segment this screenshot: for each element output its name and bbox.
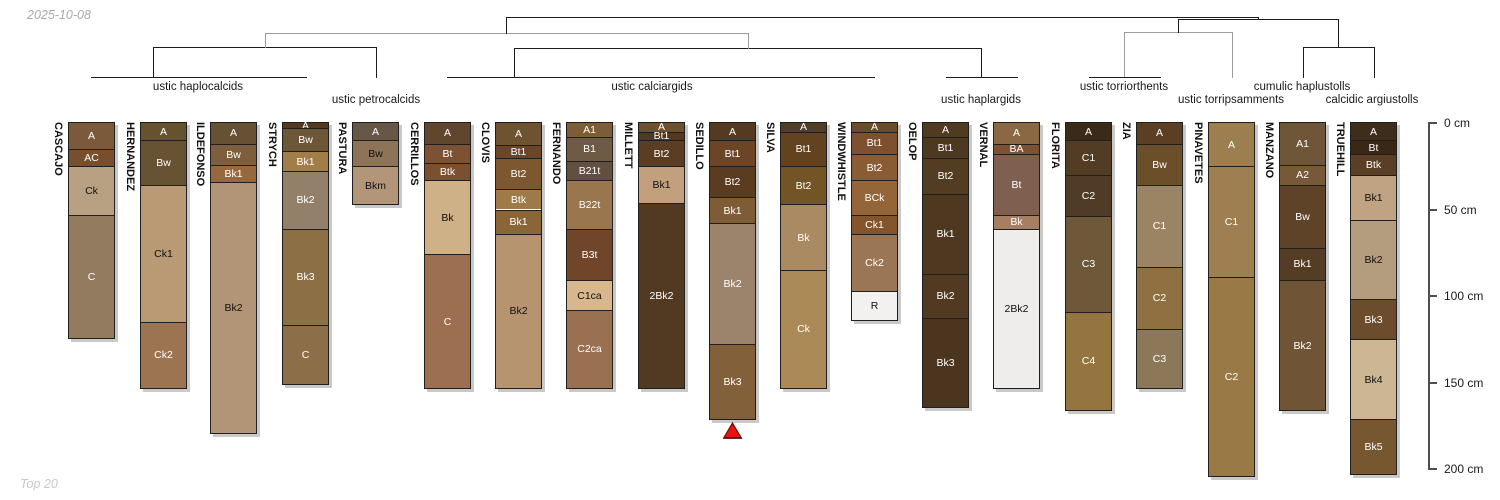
horizon-label: Bk: [1010, 217, 1022, 227]
depth-axis-tick: [1428, 382, 1437, 384]
horizon-fernando-b3t: B3t: [567, 229, 612, 281]
horizon-label: C1: [1153, 221, 1166, 231]
horizon-label: Bt1: [938, 143, 954, 153]
horizon-cerrillos-c: C: [425, 254, 470, 387]
horizon-silva-bt1: Bt1: [781, 132, 826, 167]
horizon-silva-a: A: [781, 123, 826, 132]
horizon-label: Ck: [85, 186, 98, 196]
horizon-label: Bk4: [1364, 375, 1382, 385]
horizon-windwhistle-r: R: [852, 291, 897, 320]
horizon-label: Bk1: [723, 206, 741, 216]
horizon-label: B1: [583, 144, 596, 154]
marker-triangle: [725, 424, 741, 437]
horizon-cascajo-ac: AC: [69, 149, 114, 166]
horizon-clovis-btk: Btk: [496, 189, 541, 210]
horizon-label: A: [1370, 127, 1377, 137]
horizon-label: Bt: [443, 149, 453, 159]
horizon-truehill-bk2: Bk2: [1351, 220, 1396, 300]
horizon-label: C1: [1225, 217, 1238, 227]
horizon-label: Bk2: [723, 279, 741, 289]
horizon-label: Bt1: [867, 138, 883, 148]
dendrogram-branch-v: [1232, 32, 1233, 78]
horizon-truehill-bk5: Bk5: [1351, 419, 1396, 474]
horizon-windwhistle-bt1: Bt1: [852, 132, 897, 154]
horizon-manzano-bk2: Bk2: [1280, 280, 1325, 410]
dendrogram-branch-h: [1089, 77, 1161, 78]
horizon-label: A: [1013, 128, 1020, 138]
horizon-zia-bw: Bw: [1137, 144, 1182, 186]
horizon-truehill-bt: Bt: [1351, 140, 1396, 154]
horizon-label: A: [729, 127, 736, 137]
horizon-label: B22t: [579, 200, 601, 210]
horizon-millett-bt1: Bt1: [639, 132, 684, 141]
horizon-vernal-bt: Bt: [994, 154, 1039, 215]
profile-name-windwhistle: WINDWHISTLE: [835, 122, 847, 201]
horizon-ildefonso-bk1: Bk1: [211, 165, 256, 182]
horizon-label: Btk: [511, 195, 526, 205]
horizon-label: Bkm: [365, 181, 386, 191]
horizon-pinavetes-c1: C1: [1209, 166, 1254, 277]
profile-name-clovis: CLOVIS: [479, 122, 491, 163]
horizon-label: A: [160, 127, 167, 137]
dendrogram-branch-v: [153, 47, 154, 78]
horizon-zia-c3: C3: [1137, 329, 1182, 388]
horizon-cascajo-c: C: [69, 215, 114, 338]
dendrogram-branch-v: [1258, 17, 1259, 20]
profile-name-truehill: TRUEHILL: [1334, 122, 1346, 176]
horizon-oelop-a: A: [923, 123, 968, 137]
horizon-florita-a: A: [1066, 123, 1111, 140]
horizon-oelop-bt1: Bt1: [923, 137, 968, 158]
horizon-truehill-bk4: Bk4: [1351, 339, 1396, 419]
horizon-label: B21t: [579, 166, 601, 176]
horizon-truehill-bk1: Bk1: [1351, 175, 1396, 220]
horizon-sedillo-bt1: Bt1: [710, 140, 755, 166]
horizon-label: Bk3: [1364, 315, 1382, 325]
profile-pastura: ABwBkm: [352, 122, 399, 205]
horizon-windwhistle-ck2: Ck2: [852, 234, 897, 291]
dendrogram-branch-v: [506, 17, 507, 34]
footer-top20-label: Top 20: [20, 477, 58, 491]
dendrogram-branch-v: [376, 47, 377, 78]
horizon-fernando-b1: B1: [567, 137, 612, 161]
horizon-florita-c3: C3: [1066, 216, 1111, 311]
profile-windwhistle: ABt1Bt2BCkCk1Ck2R: [851, 122, 898, 321]
horizon-label: A: [942, 125, 949, 135]
profile-name-oelop: OELOP: [906, 122, 918, 161]
horizon-hernandez-bw: Bw: [141, 140, 186, 185]
depth-axis-tick: [1428, 209, 1437, 211]
profile-fernando: A1B1B21tB22tB3tC1caC2ca: [566, 122, 613, 389]
horizon-label: Bk5: [1364, 442, 1382, 452]
soil-profile-dendrogram-plot: 2025-10-08 Top 20 ustic haplocalcidsusti…: [0, 0, 1500, 500]
horizon-label: C4: [1082, 356, 1095, 366]
cluster-label: ustic petrocalcids: [332, 94, 420, 106]
horizon-label: Bk2: [1364, 255, 1382, 265]
horizon-fernando-c2ca: C2ca: [567, 310, 612, 388]
horizon-oelop-bk2: Bk2: [923, 274, 968, 319]
horizon-label: A1: [583, 125, 596, 135]
horizon-cerrillos-bk: Bk: [425, 180, 470, 254]
horizon-label: A: [1156, 128, 1163, 138]
horizon-pastura-bkm: Bkm: [353, 166, 398, 204]
profile-name-ildefonso: ILDEFONSO: [194, 122, 206, 186]
horizon-strych-bk3: Bk3: [283, 229, 328, 326]
horizon-manzano-a1: A1: [1280, 123, 1325, 165]
dendrogram-branch-h: [91, 77, 307, 78]
horizon-ildefonso-bw: Bw: [211, 144, 256, 165]
cluster-label: ustic haplargids: [941, 94, 1021, 106]
horizon-oelop-bk3: Bk3: [923, 318, 968, 406]
profile-name-hernandez: HERNANDEZ: [124, 122, 136, 191]
horizon-label: R: [871, 301, 879, 311]
profile-name-silva: SILVA: [764, 122, 776, 153]
depth-axis-label-50: 50 cm: [1444, 203, 1477, 217]
horizon-label: Bk2: [936, 291, 954, 301]
horizon-vernal-ba: BA: [994, 144, 1039, 154]
profile-zia: ABwC1C2C3: [1136, 122, 1183, 389]
horizon-label: Bt2: [938, 171, 954, 181]
horizon-cerrillos-bt: Bt: [425, 144, 470, 163]
horizon-florita-c1: C1: [1066, 140, 1111, 175]
horizon-vernal-a: A: [994, 123, 1039, 144]
horizon-vernal-bk: Bk: [994, 215, 1039, 229]
horizon-label: Bt: [1369, 143, 1379, 153]
horizon-label: Bk: [797, 233, 809, 243]
horizon-label: C2: [1153, 293, 1166, 303]
horizon-label: B3t: [582, 250, 598, 260]
cluster-label: cumulic haplustolls: [1254, 81, 1351, 93]
profile-name-cerrillos: CERRILLOS: [408, 122, 420, 186]
horizon-label: Bw: [226, 150, 241, 160]
profile-millett: ABt1Bt2Bk12Bk2: [638, 122, 685, 389]
depth-axis-label-150: 150 cm: [1444, 376, 1483, 390]
dendrogram-branch-v: [1303, 47, 1304, 78]
cluster-label: ustic torriorthents: [1080, 81, 1168, 93]
horizon-label: A: [88, 131, 95, 141]
horizon-fernando-b21t: B21t: [567, 161, 612, 180]
horizon-pastura-bw: Bw: [353, 140, 398, 166]
profile-hernandez: ABwCk1Ck2: [140, 122, 187, 389]
horizon-ildefonso-bk2: Bk2: [211, 182, 256, 433]
horizon-label: Bk1: [1364, 193, 1382, 203]
horizon-label: Bk1: [936, 229, 954, 239]
horizon-clovis-bk2: Bk2: [496, 234, 541, 388]
profile-name-fernando: FERNANDO: [550, 122, 562, 184]
horizon-millett-2bk2: 2Bk2: [639, 203, 684, 388]
horizon-clovis-bt2: Bt2: [496, 158, 541, 189]
profile-name-strych: STRYCH: [266, 122, 278, 167]
horizon-clovis-a: A: [496, 123, 541, 145]
horizon-label: Bt2: [867, 163, 883, 173]
horizon-sedillo-a: A: [710, 123, 755, 140]
horizon-label: AC: [84, 153, 99, 163]
horizon-label: BCk: [865, 193, 885, 203]
profile-name-florita: FLORITA: [1049, 122, 1061, 169]
horizon-label: Bw: [1295, 212, 1310, 222]
depth-axis-tick: [1428, 468, 1437, 470]
horizon-cascajo-ck: Ck: [69, 166, 114, 214]
horizon-label: Bw: [368, 149, 383, 159]
horizon-truehill-a: A: [1351, 123, 1396, 140]
profile-cerrillos: ABtBtkBkC: [424, 122, 471, 389]
horizon-label: Bt2: [511, 169, 527, 179]
dendrogram-branch-v: [1124, 32, 1125, 78]
profile-name-vernal: VERNAL: [977, 122, 989, 167]
horizon-label: A: [444, 128, 451, 138]
horizon-label: Bk1: [652, 180, 670, 190]
horizon-sedillo-bk3: Bk3: [710, 344, 755, 418]
horizon-label: Bk1: [509, 217, 527, 227]
horizon-label: C3: [1153, 354, 1166, 364]
horizon-label: A: [1228, 140, 1235, 150]
horizon-label: Bk: [441, 213, 453, 223]
horizon-strych-bk1: Bk1: [283, 151, 328, 172]
dendrogram-branch-h: [946, 77, 1018, 78]
horizon-label: C2ca: [577, 344, 602, 354]
horizon-truehill-bk3: Bk3: [1351, 299, 1396, 339]
horizon-label: 2Bk2: [650, 291, 674, 301]
horizon-fernando-b22t: B22t: [567, 180, 612, 228]
horizon-label: Bk1: [1293, 259, 1311, 269]
dendrogram-branch-v: [981, 48, 982, 78]
horizon-label: Bt: [1012, 180, 1022, 190]
horizon-cascajo-a: A: [69, 123, 114, 149]
profile-name-millett: MILLETT: [622, 122, 634, 168]
profile-sedillo: ABt1Bt2Bk1Bk2Bk3: [709, 122, 756, 420]
horizon-windwhistle-bt2: Bt2: [852, 154, 897, 180]
horizon-strych-bw: Bw: [283, 128, 328, 150]
dendrogram-branch-v: [265, 33, 266, 48]
horizon-label: Ck: [797, 324, 810, 334]
horizon-zia-a: A: [1137, 123, 1182, 144]
dendrogram-branch-h: [506, 17, 1259, 18]
horizon-pastura-a: A: [353, 123, 398, 140]
horizon-label: Bt2: [725, 177, 741, 187]
dendrogram-branch-h: [447, 77, 875, 78]
horizon-hernandez-ck1: Ck1: [141, 185, 186, 322]
horizon-label: Bk2: [1293, 341, 1311, 351]
depth-axis-tick: [1428, 122, 1437, 124]
horizon-zia-c2: C2: [1137, 267, 1182, 329]
horizon-oelop-bk1: Bk1: [923, 194, 968, 274]
horizon-label: C3: [1082, 259, 1095, 269]
horizon-label: Bw: [298, 135, 313, 145]
horizon-label: Bk3: [936, 358, 954, 368]
horizon-label: Bt2: [654, 149, 670, 159]
horizon-label: C2: [1082, 191, 1095, 201]
dendrogram-branch-v: [1374, 47, 1375, 78]
horizon-strych-bk2: Bk2: [283, 171, 328, 228]
horizon-label: Ck1: [865, 220, 884, 230]
profile-cascajo: AACCkC: [68, 122, 115, 339]
profile-name-zia: ZIA: [1120, 122, 1132, 140]
horizon-windwhistle-a: A: [852, 123, 897, 132]
horizon-cerrillos-a: A: [425, 123, 470, 144]
horizon-strych-c: C: [283, 325, 328, 384]
dendrogram-branch-v: [1338, 19, 1339, 48]
depth-axis-label-200: 200 cm: [1444, 462, 1483, 476]
horizon-label: Bk2: [296, 195, 314, 205]
horizon-label: A: [1085, 127, 1092, 137]
horizon-manzano-a2: A2: [1280, 165, 1325, 186]
cluster-label: ustic torripsamments: [1178, 94, 1284, 106]
horizon-label: Bk2: [224, 303, 242, 313]
horizon-windwhistle-ck1: Ck1: [852, 215, 897, 234]
horizon-florita-c2: C2: [1066, 175, 1111, 217]
profile-manzano: A1A2BwBk1Bk2: [1279, 122, 1326, 411]
horizon-label: Ck2: [154, 350, 173, 360]
dendrogram-branch-v: [748, 33, 749, 49]
horizon-label: A2: [1296, 170, 1309, 180]
horizon-label: Bw: [156, 158, 171, 168]
horizon-oelop-bt2: Bt2: [923, 158, 968, 194]
horizon-clovis-bk1: Bk1: [496, 210, 541, 234]
horizon-label: A1: [1296, 139, 1309, 149]
profile-name-pastura: PASTURA: [336, 122, 348, 174]
horizon-label: Bk2: [509, 306, 527, 316]
horizon-windwhistle-bck: BCk: [852, 180, 897, 215]
dendrogram-branch-v: [1178, 19, 1179, 33]
horizon-pinavetes-a: A: [1209, 123, 1254, 166]
horizon-label: C: [88, 272, 96, 282]
horizon-label: Bt1: [511, 147, 527, 157]
horizon-label: Bt2: [796, 181, 812, 191]
horizon-vernal-2bk2: 2Bk2: [994, 229, 1039, 388]
horizon-truehill-btk: Btk: [1351, 154, 1396, 175]
profile-name-cascajo: CASCAJO: [52, 122, 64, 176]
depth-axis-tick: [1428, 295, 1437, 297]
horizon-label: Bk1: [296, 157, 314, 167]
horizon-cerrillos-btk: Btk: [425, 163, 470, 180]
profile-vernal: ABABtBk2Bk2: [993, 122, 1040, 389]
horizon-label: Bt1: [796, 144, 812, 154]
cluster-label: calcidic argiustolls: [1326, 94, 1419, 106]
horizon-label: Bk1: [224, 169, 242, 179]
cluster-label: ustic haplocalcids: [153, 81, 243, 93]
profile-pinavetes: AC1C2: [1208, 122, 1255, 477]
depth-axis-label-100: 100 cm: [1444, 289, 1483, 303]
profile-clovis: ABt1Bt2BtkBk1Bk2: [495, 122, 542, 389]
profile-strych: ABwBk1Bk2Bk3C: [282, 122, 329, 385]
profile-name-pinavetes: PINAVETES: [1192, 122, 1204, 184]
horizon-fernando-a1: A1: [567, 123, 612, 137]
horizon-silva-bt2: Bt2: [781, 166, 826, 204]
depth-axis-label-0: 0 cm: [1444, 116, 1470, 130]
horizon-label: Btk: [1366, 160, 1381, 170]
horizon-sedillo-bk1: Bk1: [710, 197, 755, 223]
profile-name-manzano: MANZANO: [1263, 122, 1275, 178]
profile-ildefonso: ABwBk1Bk2: [210, 122, 257, 434]
horizon-label: Ck1: [154, 249, 173, 259]
horizon-label: C1ca: [577, 291, 602, 301]
horizon-label: C: [444, 317, 452, 327]
horizon-label: Bw: [1152, 160, 1167, 170]
horizon-millett-bt2: Bt2: [639, 140, 684, 166]
horizon-pinavetes-c2: C2: [1209, 277, 1254, 476]
horizon-ildefonso-a: A: [211, 123, 256, 144]
horizon-hernandez-a: A: [141, 123, 186, 140]
horizon-label: Bt1: [725, 149, 741, 159]
profile-florita: AC1C2C3C4: [1065, 122, 1112, 411]
horizon-label: A: [372, 127, 379, 137]
horizon-label: C1: [1082, 153, 1095, 163]
horizon-silva-ck: Ck: [781, 270, 826, 388]
horizon-sedillo-bt2: Bt2: [710, 166, 755, 197]
horizon-sedillo-bk2: Bk2: [710, 223, 755, 344]
horizon-label: 2Bk2: [1005, 304, 1029, 314]
horizon-label: C: [302, 350, 310, 360]
profile-oelop: ABt1Bt2Bk1Bk2Bk3: [922, 122, 969, 408]
profile-name-sedillo: SEDILLO: [693, 122, 705, 170]
cluster-label: ustic calciargids: [611, 81, 692, 93]
horizon-millett-bk1: Bk1: [639, 166, 684, 202]
horizon-manzano-bw: Bw: [1280, 185, 1325, 247]
dendrogram-branch-v: [514, 48, 515, 78]
horizon-hernandez-ck2: Ck2: [141, 322, 186, 388]
horizon-label: BA: [1009, 144, 1023, 154]
horizon-silva-bk: Bk: [781, 204, 826, 270]
horizon-florita-c4: C4: [1066, 312, 1111, 411]
profile-truehill: ABtBtkBk1Bk2Bk3Bk4Bk5: [1350, 122, 1397, 475]
profile-silva: ABt1Bt2BkCk: [780, 122, 827, 389]
horizon-label: Btk: [440, 167, 455, 177]
horizon-label: A: [230, 128, 237, 138]
horizon-label: Bk3: [723, 377, 741, 387]
horizon-clovis-bt1: Bt1: [496, 145, 541, 157]
horizon-label: Ck2: [865, 258, 884, 268]
horizon-label: C2: [1225, 372, 1238, 382]
horizon-fernando-c1ca: C1ca: [567, 280, 612, 309]
horizon-zia-c1: C1: [1137, 185, 1182, 266]
date-stamp: 2025-10-08: [27, 8, 91, 22]
horizon-manzano-bk1: Bk1: [1280, 248, 1325, 281]
horizon-label: Bk3: [296, 272, 314, 282]
horizon-label: A: [515, 129, 522, 139]
